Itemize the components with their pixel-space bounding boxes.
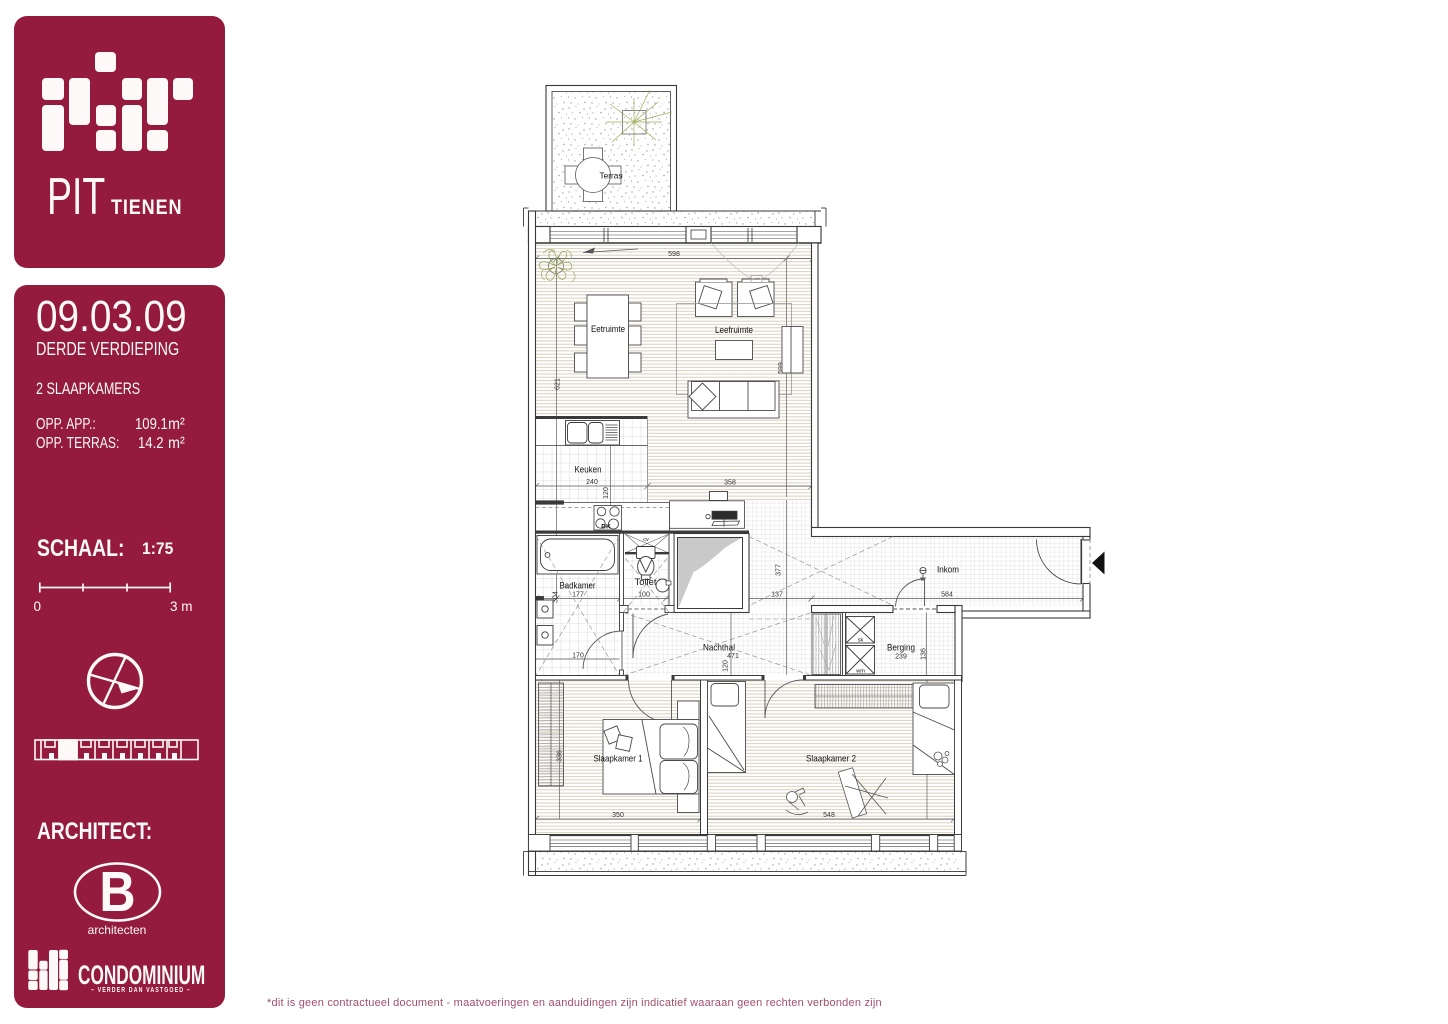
svg-text:584: 584 (941, 592, 953, 599)
svg-text:Slaapkamer 1: Slaapkamer 1 (594, 754, 643, 765)
svg-text:Terras: Terras (600, 171, 623, 181)
svg-text:358: 358 (724, 480, 736, 487)
svg-text:wm: wm (855, 669, 865, 675)
svg-text:621: 621 (555, 378, 562, 390)
svg-text:177: 177 (572, 592, 584, 599)
svg-text:Toilet: Toilet (635, 577, 657, 588)
svg-text:471: 471 (727, 653, 739, 660)
svg-text:Slaapkamer 2: Slaapkamer 2 (806, 754, 856, 765)
svg-text:136: 136 (921, 648, 928, 660)
svg-text:377: 377 (776, 564, 783, 576)
svg-text:137: 137 (771, 592, 783, 599)
svg-text:DK: DK (601, 524, 611, 531)
svg-text:sk: sk (858, 638, 864, 644)
svg-text:Keuken: Keuken (575, 465, 602, 476)
svg-text:598: 598 (668, 251, 680, 258)
svg-text:548: 548 (823, 812, 835, 819)
svg-text:304: 304 (553, 591, 560, 603)
svg-text:239: 239 (895, 654, 907, 661)
svg-text:Berging: Berging (887, 643, 915, 654)
svg-text:Leefruimte: Leefruimte (715, 325, 753, 336)
svg-text:120: 120 (603, 487, 610, 499)
svg-text:350: 350 (612, 812, 624, 819)
svg-text:cv: cv (643, 537, 649, 543)
svg-text:170: 170 (572, 653, 584, 660)
svg-text:Badkamer: Badkamer (560, 581, 596, 592)
svg-text:120: 120 (723, 660, 730, 672)
svg-text:Eetruimte: Eetruimte (591, 324, 625, 335)
svg-text:100: 100 (638, 592, 650, 599)
svg-text:Inkom: Inkom (937, 565, 959, 576)
svg-text:240: 240 (586, 479, 598, 486)
